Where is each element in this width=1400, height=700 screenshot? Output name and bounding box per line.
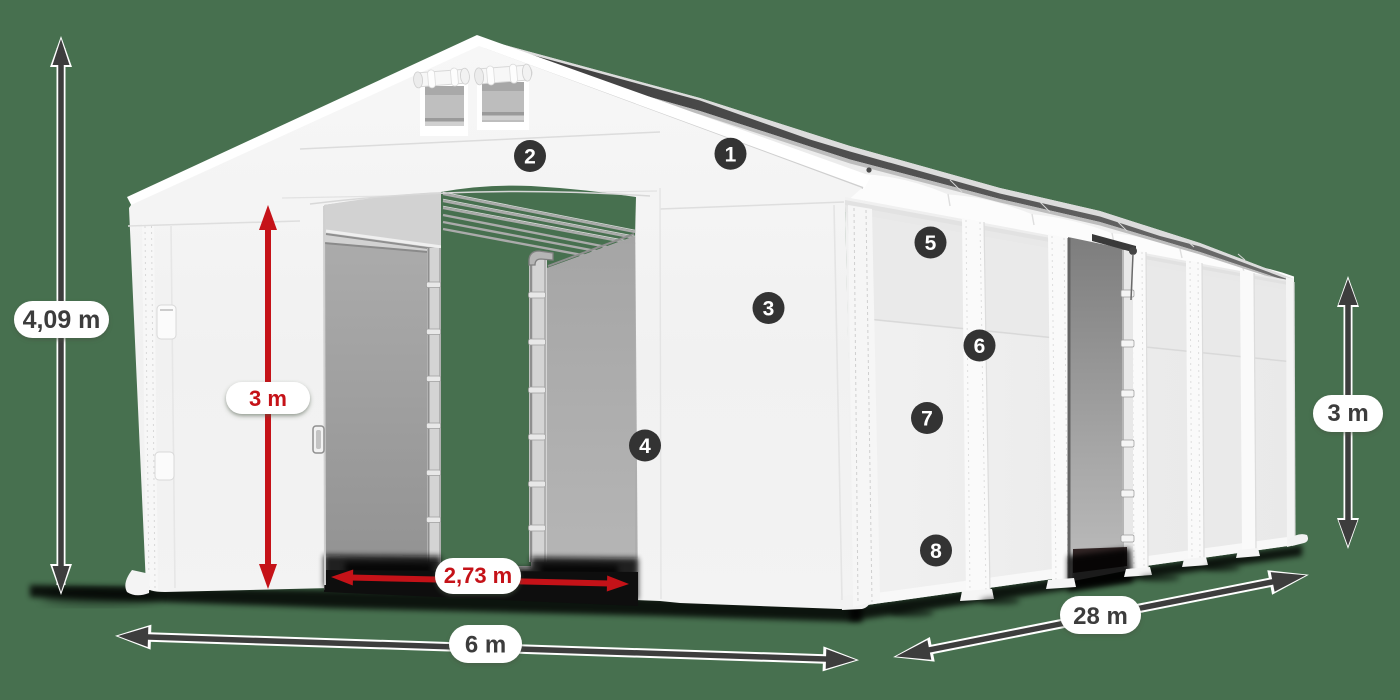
svg-text:1: 1 xyxy=(725,143,737,166)
svg-text:5: 5 xyxy=(925,232,937,255)
svg-text:6: 6 xyxy=(974,335,986,358)
svg-text:3 m: 3 m xyxy=(249,386,287,411)
svg-text:2: 2 xyxy=(524,146,536,169)
svg-text:6 m: 6 m xyxy=(465,632,506,659)
svg-text:7: 7 xyxy=(921,408,933,431)
svg-text:4: 4 xyxy=(639,435,651,458)
svg-text:3 m: 3 m xyxy=(1327,400,1368,427)
svg-text:3: 3 xyxy=(763,298,775,321)
svg-text:28 m: 28 m xyxy=(1073,603,1128,630)
svg-text:2,73 m: 2,73 m xyxy=(444,563,513,588)
svg-text:4,09 m: 4,09 m xyxy=(23,306,101,334)
svg-text:8: 8 xyxy=(930,540,942,563)
